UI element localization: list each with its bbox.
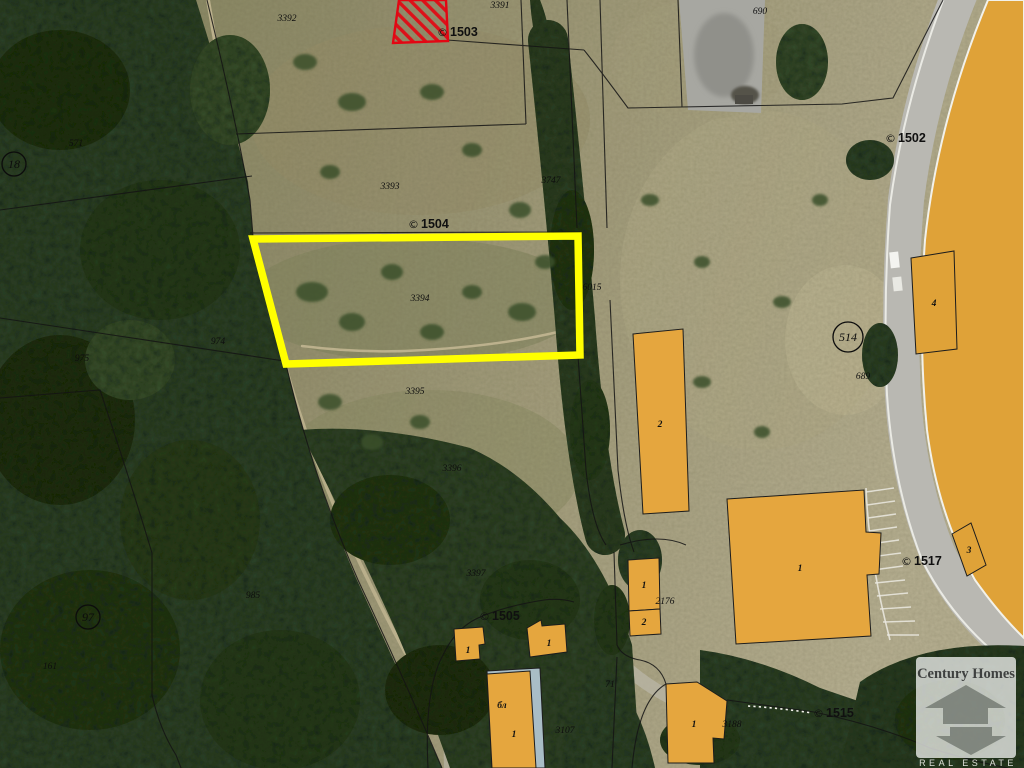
point-label: 1517 (914, 554, 942, 568)
building-label: 4 (931, 299, 937, 309)
building-label: 1 (798, 564, 803, 574)
parcel-label: 689 (856, 372, 871, 382)
building-label: 1 (642, 581, 647, 591)
circled-parcel-label: 514 (839, 330, 857, 344)
point-label: 1503 (450, 25, 478, 39)
building-label: 2 (657, 420, 663, 430)
parcel-label: 3747 (541, 176, 562, 186)
parcel-label: 974 (211, 337, 226, 347)
building-label: 1 (466, 646, 471, 656)
point-label: 1505 (492, 609, 520, 623)
circled-parcel-label: 18 (8, 157, 20, 171)
building (487, 671, 536, 768)
parcel-label: 690 (753, 7, 768, 17)
century-homes-logo: Century Homes REAL ESTATE (916, 657, 1017, 768)
point-marker-icon: © (408, 218, 419, 231)
logo-subtitle: REAL ESTATE (919, 758, 1017, 768)
building-label: 3 (966, 546, 972, 556)
point-marker-icon: © (901, 555, 912, 568)
building-label: 1 (692, 720, 697, 730)
point-label: 1502 (898, 131, 926, 145)
parcel-label: 571 (69, 139, 83, 149)
map-viewport[interactable]: 3391339233933394339533963397374760156906… (0, 0, 1024, 768)
parcel-label: 3188 (722, 720, 742, 730)
parcel-label: 3107 (555, 726, 576, 736)
building-label: бл (497, 700, 507, 711)
parcel-label: 3393 (380, 182, 400, 192)
parcel-label: 3391 (490, 1, 510, 11)
point-label: 1515 (826, 706, 854, 720)
circled-parcel-label: 97 (82, 610, 95, 624)
map-canvas[interactable]: 3391339233933394339533963397374760156906… (0, 0, 1024, 768)
point-marker-icon: © (479, 610, 490, 623)
parcel-label: 3392 (277, 14, 297, 24)
parcel-label: 985 (246, 591, 261, 601)
building-label: 2 (641, 618, 647, 628)
parcel-label: 3396 (442, 464, 462, 474)
point-marker-icon: © (437, 26, 448, 39)
parcel-label: 3397 (466, 569, 487, 579)
parcel-label: 6015 (583, 283, 602, 293)
parcel-label: 3395 (405, 387, 425, 397)
point-label: 1504 (421, 217, 449, 231)
building-label: 1 (512, 730, 517, 740)
parcel-label: 2176 (656, 597, 675, 607)
point-marker-icon: © (885, 132, 896, 145)
parcel-label: 3394 (410, 294, 430, 304)
building (727, 490, 881, 644)
point-marker-icon: © (813, 707, 824, 720)
parcel-label: 71 (605, 680, 615, 690)
parcel-label: 975 (75, 354, 90, 364)
parcel-label: 161 (43, 662, 57, 672)
building-label: 1 (547, 639, 552, 649)
logo-title: Century Homes (917, 666, 1015, 682)
